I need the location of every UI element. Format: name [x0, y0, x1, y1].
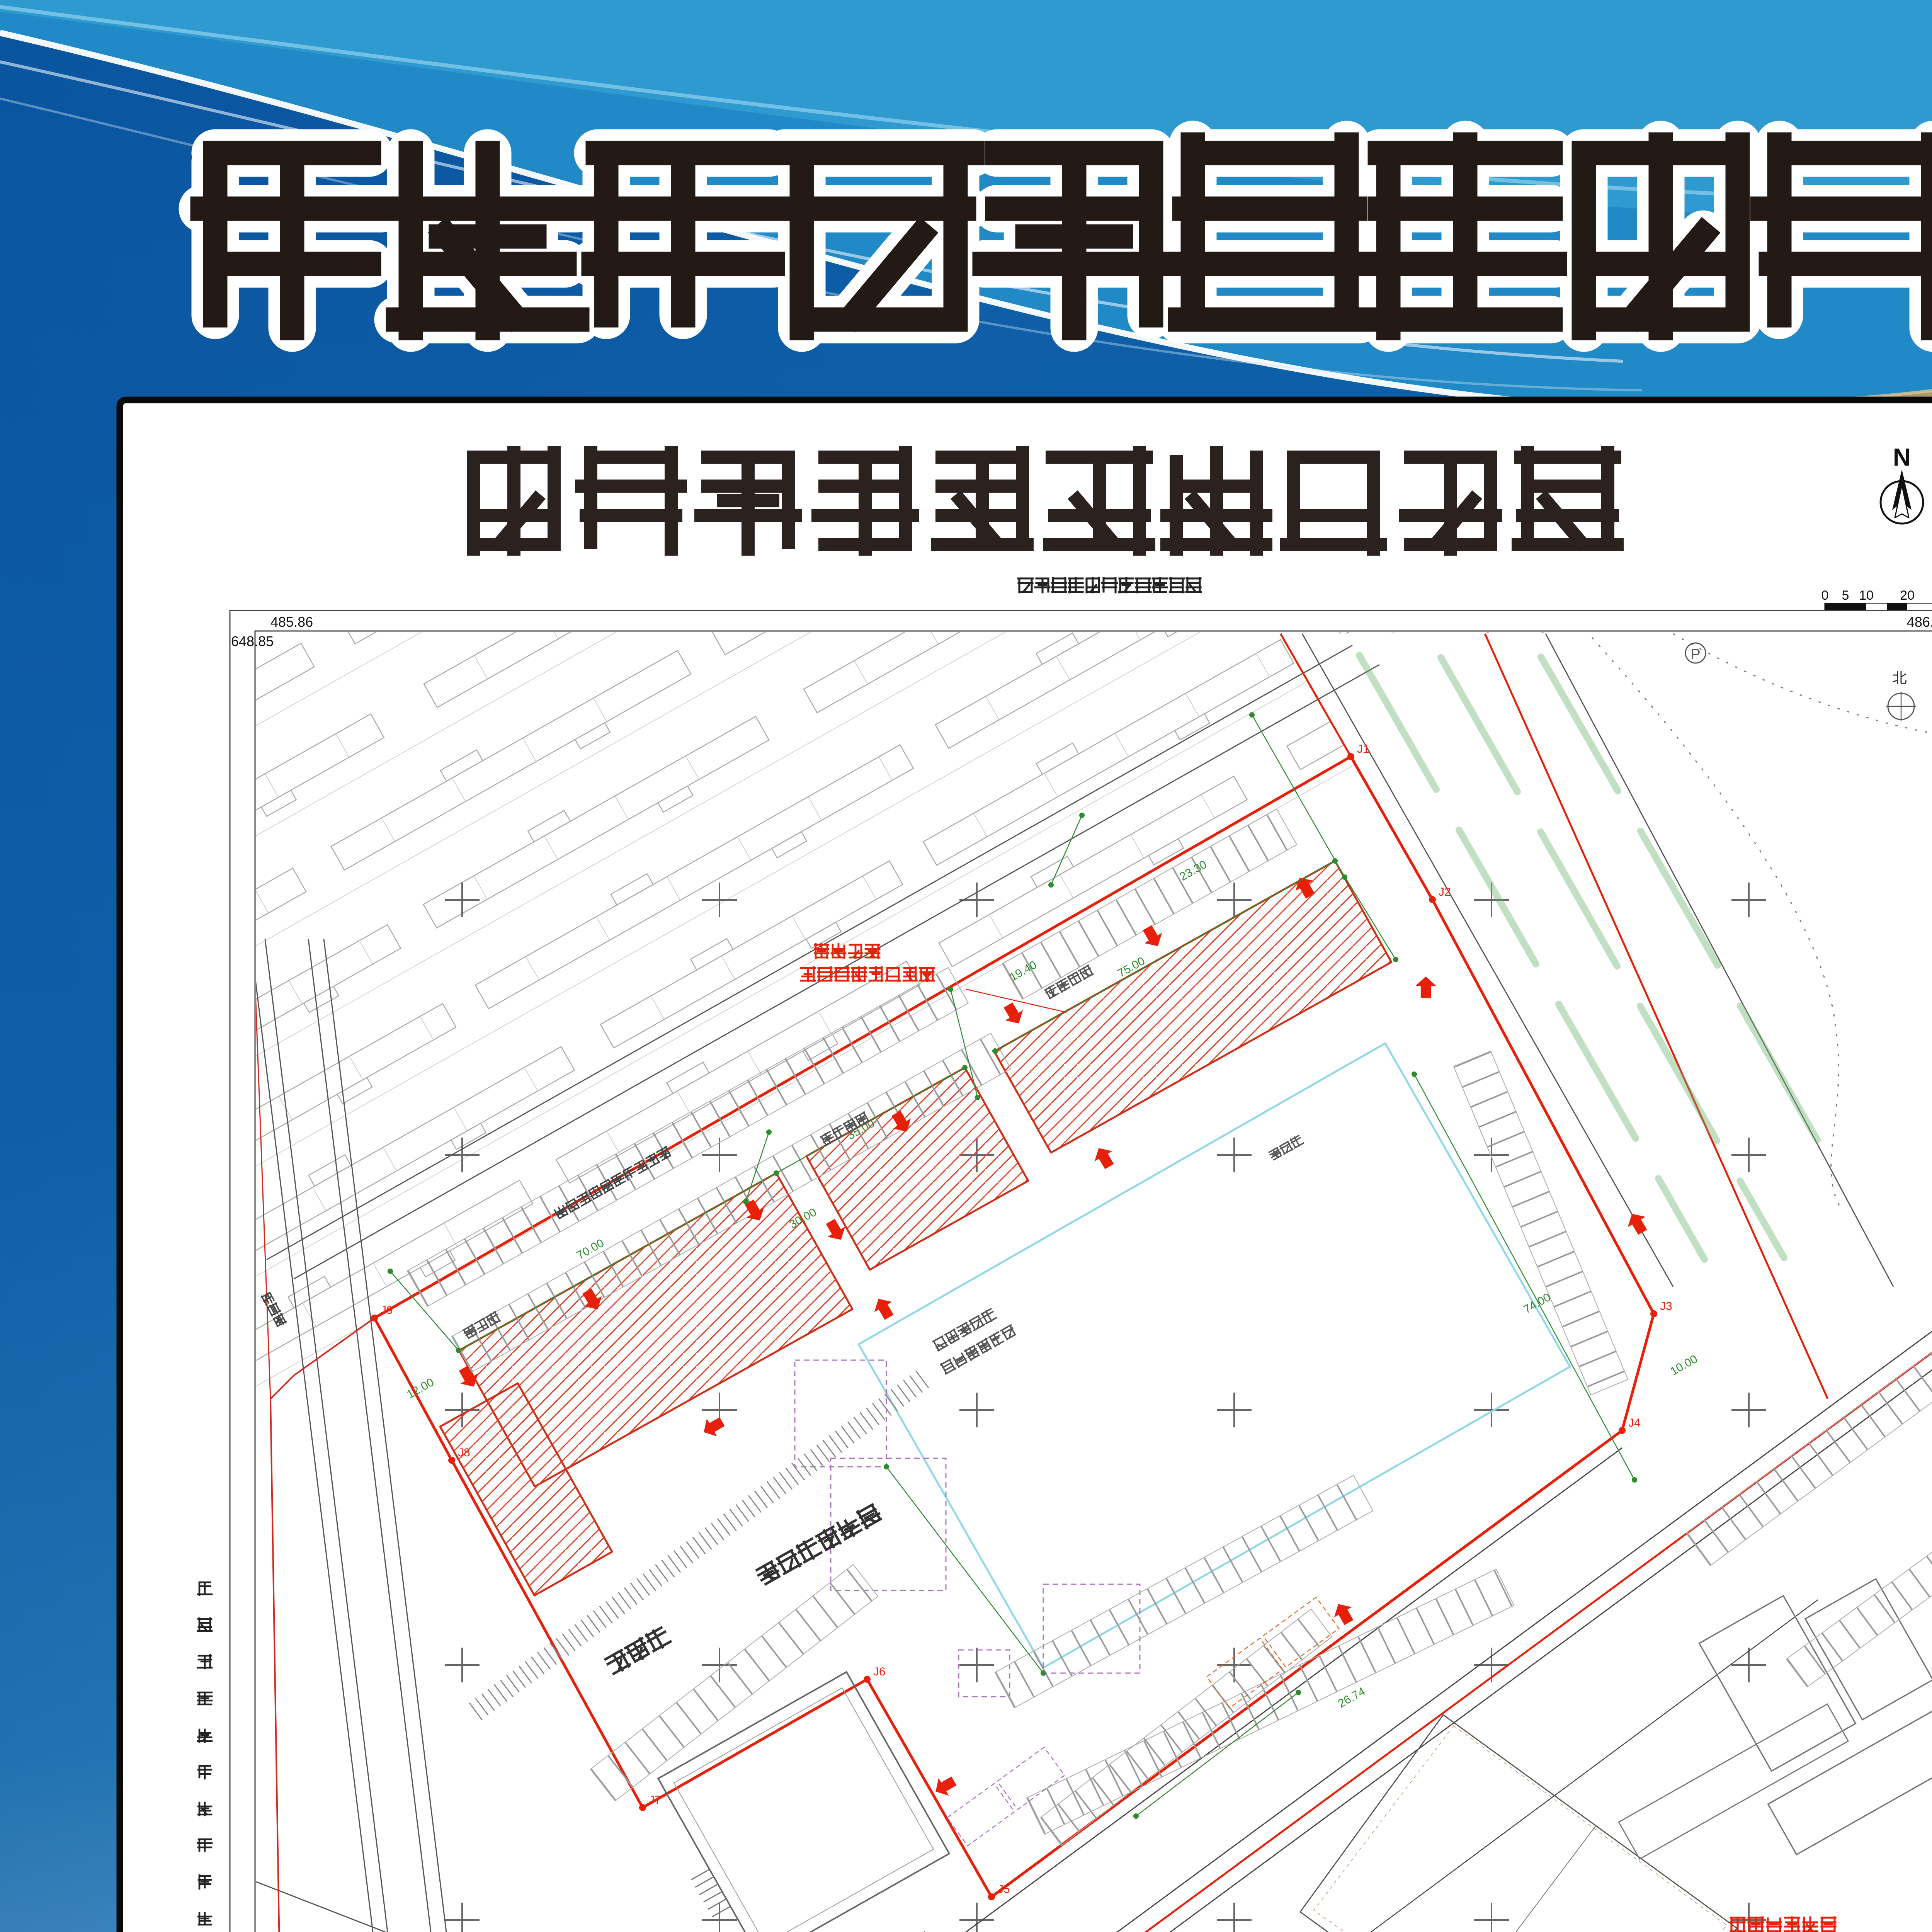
svg-text:P: P — [1690, 646, 1700, 663]
svg-text:485.86: 485.86 — [270, 614, 313, 630]
svg-text:648.85: 648.85 — [231, 633, 274, 649]
svg-text:5: 5 — [1842, 588, 1849, 603]
svg-text:10: 10 — [1859, 588, 1874, 603]
svg-text:J7: J7 — [649, 1794, 661, 1806]
svg-text:J2: J2 — [1439, 886, 1451, 898]
svg-text:J5: J5 — [998, 1883, 1010, 1896]
svg-text:486.19: 486.19 — [1907, 614, 1932, 630]
svg-text:J3: J3 — [1660, 1300, 1672, 1313]
svg-text:北: 北 — [1892, 670, 1907, 687]
svg-text:0: 0 — [1821, 588, 1829, 603]
svg-text:N: N — [1893, 443, 1911, 471]
svg-text:J4: J4 — [1628, 1417, 1641, 1429]
svg-text:20: 20 — [1900, 588, 1915, 603]
svg-text:J9: J9 — [381, 1304, 393, 1317]
svg-text:J1: J1 — [1357, 743, 1369, 755]
svg-text:J6: J6 — [873, 1665, 886, 1678]
